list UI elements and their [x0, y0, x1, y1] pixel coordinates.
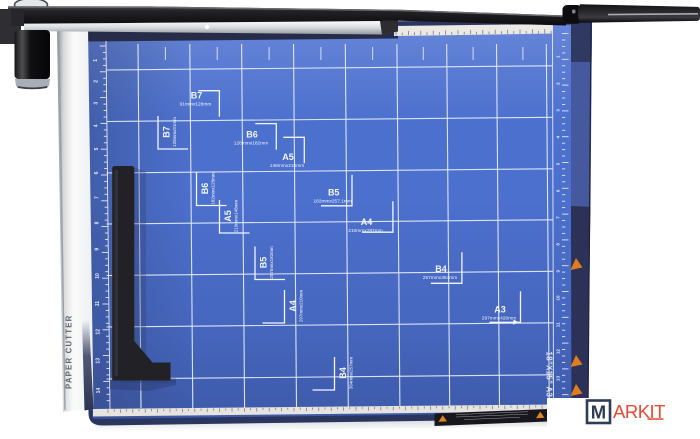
svg-text:6: 6: [556, 189, 561, 192]
svg-text:B6: B6: [246, 130, 258, 140]
svg-text:4: 4: [94, 124, 100, 127]
svg-text:18”X15” A3: 18”X15” A3: [545, 352, 554, 398]
svg-text:B4: B4: [435, 264, 447, 274]
svg-text:B5: B5: [328, 188, 340, 198]
svg-text:182mmx128mm: 182mmx128mm: [211, 172, 216, 205]
svg-text:11: 11: [95, 301, 101, 307]
svg-text:8: 8: [95, 221, 101, 224]
svg-text:10: 10: [95, 273, 101, 279]
svg-text:12: 12: [556, 349, 561, 355]
svg-text:13: 13: [96, 358, 102, 364]
svg-text:8: 8: [556, 243, 561, 246]
svg-text:A5: A5: [282, 152, 294, 162]
svg-text:297mmx420mm: 297mmx420mm: [482, 315, 516, 321]
svg-text:91mmx128mm: 91mmx128mm: [180, 101, 212, 107]
svg-text:B7: B7: [162, 126, 172, 138]
svg-text:A4: A4: [288, 300, 298, 312]
svg-text:5: 5: [556, 162, 561, 165]
svg-text:10: 10: [556, 295, 561, 301]
svg-text:B6: B6: [200, 183, 210, 195]
svg-text:5: 5: [94, 147, 100, 150]
svg-text:257mmx364mm: 257mmx364mm: [423, 275, 457, 281]
svg-text:PAPER CUTTER: PAPER CUTTER: [65, 315, 74, 389]
svg-text:257mmx182mm: 257mmx182mm: [269, 246, 274, 279]
svg-text:A4: A4: [361, 217, 373, 227]
svg-text:2: 2: [556, 82, 561, 85]
svg-text:2: 2: [93, 80, 99, 83]
svg-text:13: 13: [556, 375, 561, 381]
svg-text:12: 12: [95, 329, 101, 335]
svg-text:A3: A3: [494, 305, 506, 315]
svg-text:1: 1: [556, 55, 561, 58]
svg-text:9: 9: [556, 269, 561, 272]
svg-text:3: 3: [94, 102, 100, 105]
svg-text:148mmx210mm: 148mmx210mm: [270, 163, 304, 169]
svg-text:A5: A5: [223, 210, 233, 222]
svg-text:9: 9: [95, 248, 101, 251]
svg-text:128mmx182mm: 128mmx182mm: [234, 140, 268, 146]
svg-text:182mmx257.1mm: 182mmx257.1mm: [314, 198, 352, 204]
svg-text:128mmx91mm: 128mmx91mm: [172, 117, 177, 147]
svg-text:1: 1: [93, 59, 99, 62]
svg-text:14: 14: [96, 388, 102, 394]
svg-text:M: M: [591, 401, 606, 422]
svg-text:B4: B4: [338, 367, 348, 379]
svg-text:364mmx257mm: 364mmx257mm: [349, 357, 354, 390]
svg-text:3: 3: [556, 109, 561, 112]
svg-text:B7: B7: [191, 91, 203, 101]
svg-text:B5: B5: [259, 257, 269, 269]
svg-text:6: 6: [94, 171, 100, 174]
svg-text:7: 7: [556, 216, 561, 219]
svg-text:210mmx148mm: 210mmx148mm: [234, 200, 239, 233]
svg-text:4: 4: [556, 135, 561, 138]
svg-text:297mmx210mm: 297mmx210mm: [299, 290, 304, 323]
svg-text:210mmx297mm: 210mmx297mm: [348, 228, 382, 234]
svg-text:11: 11: [556, 322, 561, 327]
svg-text:7: 7: [94, 196, 100, 199]
